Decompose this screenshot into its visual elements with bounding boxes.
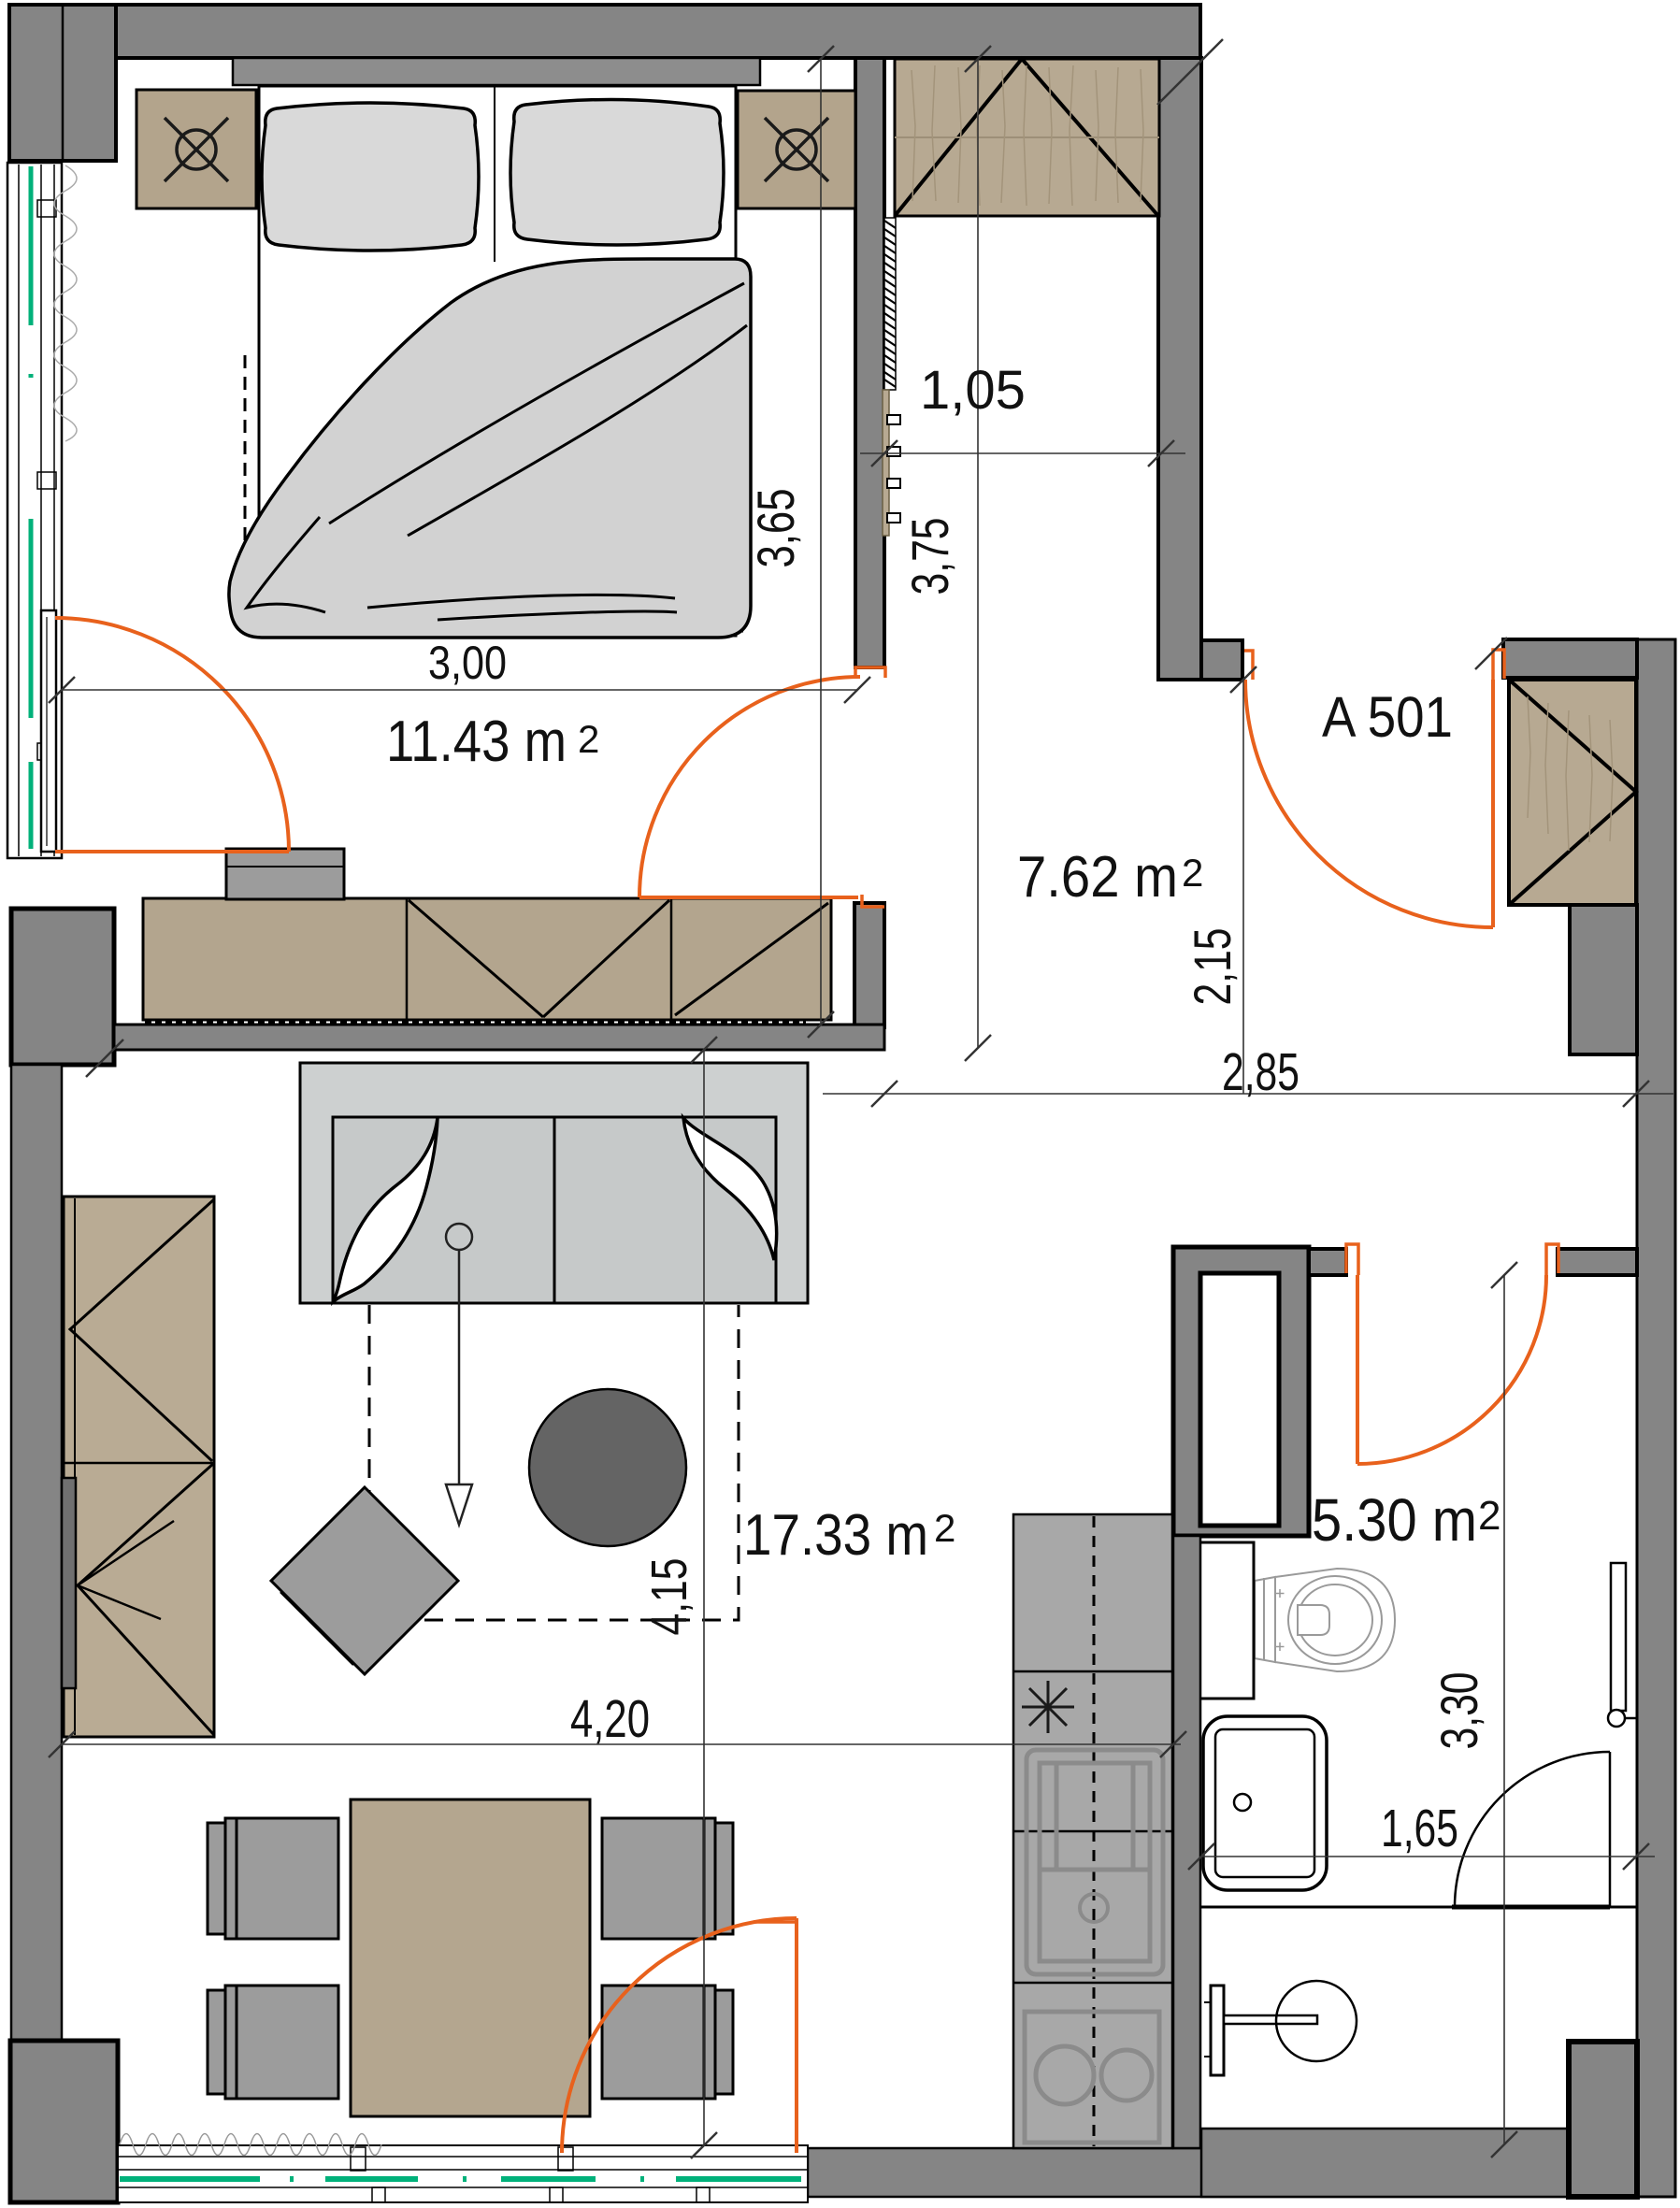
svg-text:3,65: 3,65 <box>746 489 805 568</box>
svg-text:3,75: 3,75 <box>900 518 959 595</box>
svg-text:1,05: 1,05 <box>920 360 1026 421</box>
svg-text:2: 2 <box>1478 1493 1501 1539</box>
svg-text:3,00: 3,00 <box>428 637 507 689</box>
svg-text:7.62 m: 7.62 m <box>1017 845 1178 910</box>
svg-text:2,15: 2,15 <box>1183 928 1242 1006</box>
svg-text:1,65: 1,65 <box>1381 1799 1458 1858</box>
svg-text:2: 2 <box>578 717 599 761</box>
svg-text:2,85: 2,85 <box>1222 1042 1299 1102</box>
svg-text:4,15: 4,15 <box>641 1558 697 1636</box>
svg-text:2: 2 <box>934 1506 955 1550</box>
svg-text:4,20: 4,20 <box>570 1689 650 1749</box>
svg-text:17.33 m: 17.33 m <box>743 1503 928 1568</box>
svg-text:2: 2 <box>1182 851 1203 895</box>
svg-text:5.30 m: 5.30 m <box>1312 1486 1477 1554</box>
svg-text:A 501: A 501 <box>1322 685 1453 749</box>
svg-text:3,30: 3,30 <box>1429 1672 1488 1750</box>
svg-text:11.43 m: 11.43 m <box>386 710 567 774</box>
